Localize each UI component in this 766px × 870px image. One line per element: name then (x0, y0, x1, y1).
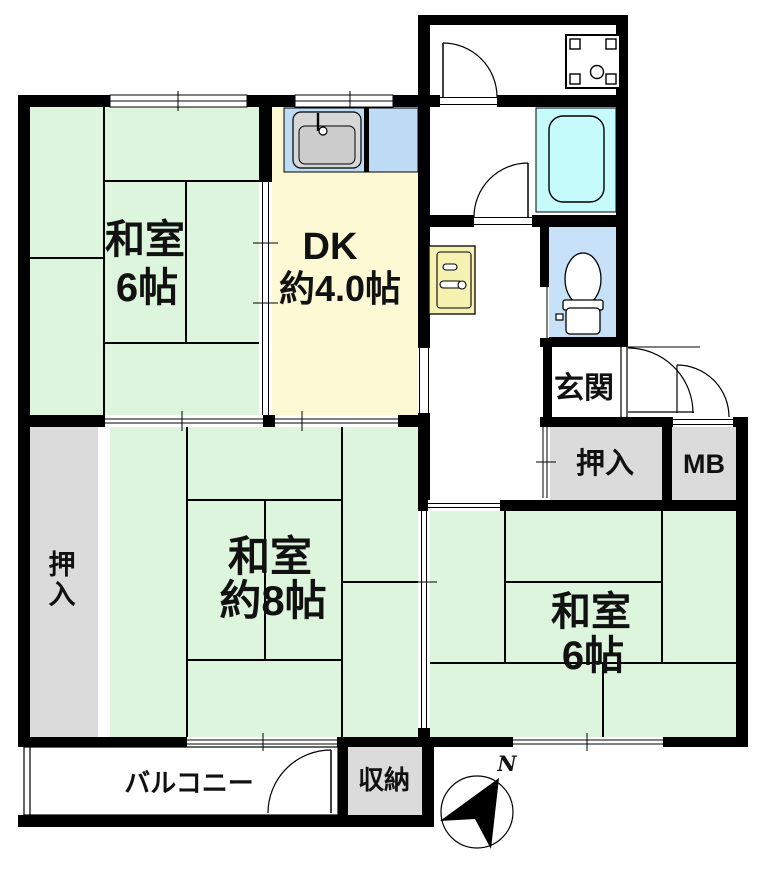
wall (736, 417, 748, 747)
label-oshiire-left-char2: 入 (49, 580, 76, 610)
kitchen-sink-icon (293, 112, 361, 168)
label-genkan: 玄関 (554, 371, 614, 405)
wall (543, 347, 552, 417)
label-washitsu-se-name: 和室 (551, 590, 631, 634)
floor-plan-page: N 和室 6帖 DK 約4.0帖 和室 約8帖 和室 6帖 玄関 押入 MB 押… (0, 0, 766, 870)
door-sill (474, 215, 532, 227)
label-washitsu-se-size: 6帖 (562, 634, 624, 678)
wall (18, 815, 434, 827)
washer-pan-icon (566, 35, 620, 88)
wall (418, 15, 628, 25)
door-sill (673, 417, 733, 427)
label-dk-size: 約4.0帖 (279, 268, 401, 309)
door-opening (418, 348, 430, 413)
door-sill (440, 95, 497, 107)
counter-divider (364, 108, 369, 172)
wash-basin-icon (429, 246, 475, 314)
wall (662, 427, 672, 500)
label-balcony: バルコニー (124, 768, 253, 798)
label-dk-name: DK (303, 226, 358, 268)
floor-plan-drawing: N 和室 6帖 DK 約4.0帖 和室 約8帖 和室 6帖 玄関 押入 MB 押… (0, 0, 766, 870)
compass-north-label: N (496, 751, 517, 776)
label-oshiire-right: 押入 (576, 447, 634, 480)
sliding-door (428, 500, 500, 511)
label-shuno: 収納 (358, 765, 410, 795)
kitchen-counter (284, 108, 418, 172)
label-meter-box: MB (683, 449, 725, 479)
door-opening (540, 287, 549, 338)
wall (259, 107, 272, 182)
label-washitsu-nw-size: 6帖 (116, 266, 178, 310)
label-washitsu-center-name: 和室 (228, 533, 312, 580)
wall (540, 337, 628, 347)
label-oshiire-left-char1: 押 (49, 550, 76, 580)
wall (422, 737, 434, 827)
wall (540, 227, 549, 287)
label-washitsu-center-size: 約8帖 (219, 577, 326, 624)
label-washitsu-nw-name: 和室 (105, 218, 185, 262)
wall (338, 747, 348, 817)
